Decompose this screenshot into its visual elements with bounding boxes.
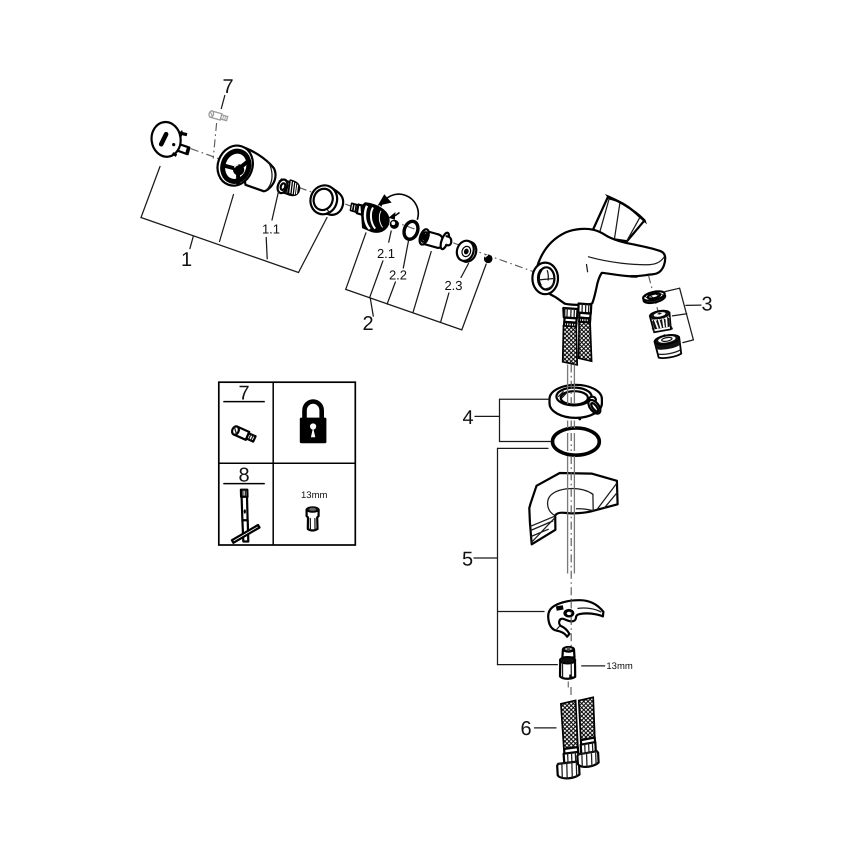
svg-text:2: 2 (362, 313, 373, 335)
svg-text:2.3: 2.3 (444, 278, 462, 293)
svg-text:7: 7 (222, 76, 233, 98)
svg-text:13mm: 13mm (301, 490, 327, 501)
svg-text:3: 3 (701, 294, 712, 316)
svg-text:4: 4 (462, 407, 473, 429)
svg-text:1: 1 (181, 249, 192, 271)
svg-text:13mm: 13mm (606, 661, 632, 672)
svg-text:2.2: 2.2 (389, 268, 407, 283)
svg-text:1.1: 1.1 (262, 222, 280, 237)
svg-text:5: 5 (462, 549, 473, 571)
svg-text:6: 6 (520, 718, 531, 740)
svg-text:2.1: 2.1 (377, 246, 395, 261)
